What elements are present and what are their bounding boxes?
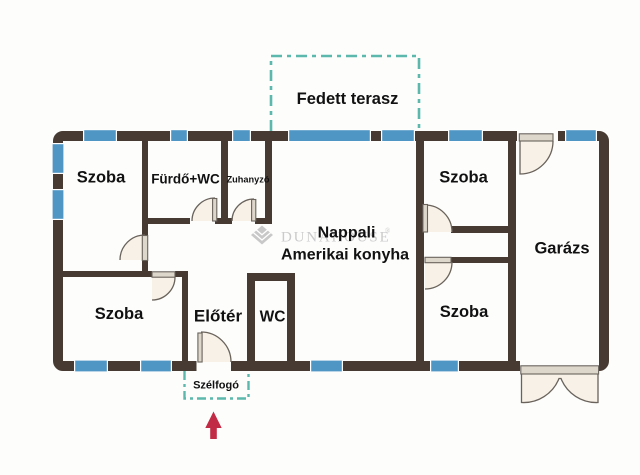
svg-text:Amerikai konyha: Amerikai konyha: [281, 247, 409, 264]
svg-text:Szélfogó: Szélfogó: [193, 380, 239, 392]
svg-text:Szoba: Szoba: [439, 169, 488, 187]
svg-text:Garázs: Garázs: [534, 240, 589, 258]
svg-text:®: ®: [385, 227, 391, 235]
svg-text:WC: WC: [260, 309, 286, 326]
svg-text:Fürdő+WC: Fürdő+WC: [151, 172, 220, 187]
svg-text:Szoba: Szoba: [95, 305, 144, 323]
svg-text:Szoba: Szoba: [440, 303, 489, 321]
svg-text:Nappali: Nappali: [318, 225, 376, 242]
svg-text:Zuhanyzó: Zuhanyzó: [227, 175, 270, 185]
svg-text:Szoba: Szoba: [77, 169, 126, 187]
svg-text:Előtér: Előtér: [194, 307, 243, 326]
svg-text:Fedett terasz: Fedett terasz: [297, 90, 399, 108]
